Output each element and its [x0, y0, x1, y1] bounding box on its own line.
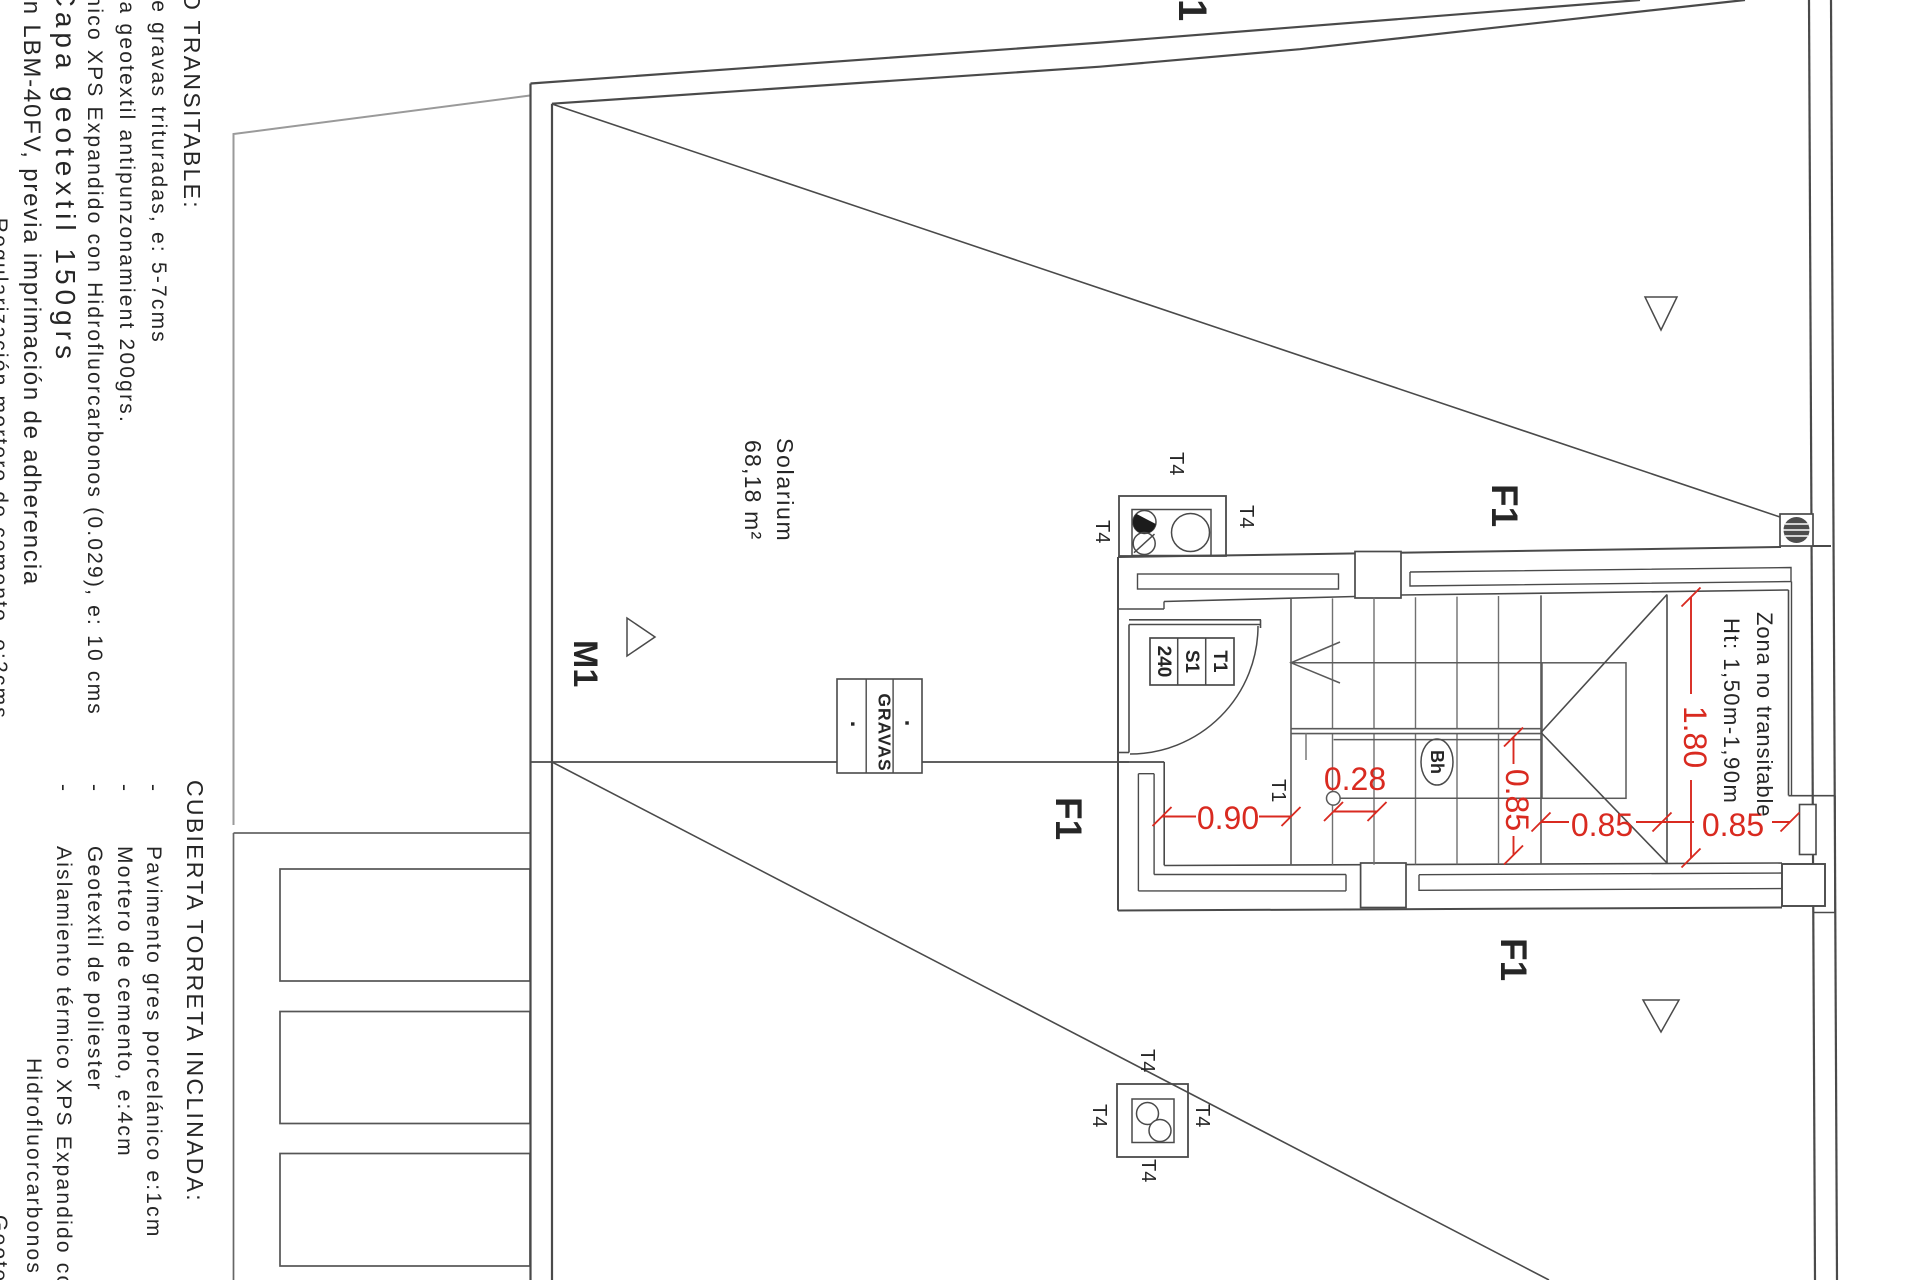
svg-text:0.28: 0.28 [1324, 761, 1386, 797]
svg-text:CUBIERTA PLANA NO TRANSITABLE:: CUBIERTA PLANA NO TRANSITABLE: [179, 0, 205, 210]
svg-text:Mortero de cemento, e:4cm: Mortero de cemento, e:4cm [113, 846, 136, 1158]
svg-text:Geotextil de poliester: Geotextil de poliester [83, 846, 106, 1092]
svg-text:-: - [142, 784, 165, 793]
svg-text:T4: T4 [1191, 1104, 1213, 1127]
svg-text:1: 1 [1170, 0, 1214, 21]
svg-text:T1: T1 [1209, 650, 1230, 673]
svg-text:T4: T4 [1137, 1159, 1159, 1182]
svg-text:68,18 m²: 68,18 m² [740, 440, 766, 540]
svg-text:0.85: 0.85 [1499, 769, 1535, 831]
svg-text:T1: T1 [1267, 779, 1289, 802]
svg-text:1.80: 1.80 [1677, 706, 1713, 768]
svg-text:GRAVAS: GRAVAS [875, 693, 895, 771]
svg-text:-: - [113, 784, 136, 793]
svg-text:F1: F1 [1048, 797, 1089, 840]
svg-text:0.90: 0.90 [1197, 800, 1259, 836]
svg-text:Aislamiento térmico XPS Expand: Aislamiento térmico XPS Expandido con [52, 846, 75, 1280]
svg-text:-: - [83, 784, 106, 793]
svg-text:Zona no transitable: Zona no transitable [1752, 612, 1777, 817]
svg-text:0.85: 0.85 [1571, 807, 1633, 843]
svg-text:Capa geotextil antipunzonamien: Capa geotextil antipunzonamient 200grs. [115, 0, 138, 424]
svg-text:CUBIERTA TORRETA INCLINADA:: CUBIERTA TORRETA INCLINADA: [182, 780, 208, 1203]
svg-text:Aislamiento térmico XPS Expand: Aislamiento térmico XPS Expandido con Hi… [83, 0, 106, 716]
svg-text:T4: T4 [1165, 452, 1187, 475]
svg-text:F1: F1 [1493, 938, 1534, 981]
svg-text:Ht: 1,50m-1,90m: Ht: 1,50m-1,90m [1719, 618, 1744, 804]
svg-text:S1: S1 [1181, 650, 1202, 674]
svg-text:Capa geotextil 150grs: Capa geotextil 150grs [50, 0, 81, 364]
svg-text:240: 240 [1153, 646, 1174, 678]
svg-text:T4: T4 [1136, 1049, 1158, 1072]
svg-text:Regularización mortero de ceme: Regularización mortero de cemento, e:2cm… [0, 218, 11, 720]
svg-text:M1: M1 [566, 640, 604, 687]
svg-text:Impermeabilización LBM-40FV, p: Impermeabilización LBM-40FV, previa impr… [18, 0, 45, 586]
svg-text:Solarium: Solarium [772, 438, 798, 542]
svg-text:Acabado de gravas trituradas,: Acabado de gravas trituradas, e: 5-7cms [147, 0, 170, 344]
svg-text:F1: F1 [1484, 484, 1525, 527]
svg-text:-: - [52, 784, 75, 793]
svg-text:Geotextil poliester: Geotextil poliester [0, 1215, 11, 1280]
svg-text:T4: T4 [1235, 505, 1257, 528]
svg-text:T4: T4 [1088, 1104, 1110, 1127]
svg-text:Bh: Bh [1427, 750, 1447, 774]
svg-text:Pavimento gres porcelánico e:1: Pavimento gres porcelánico e:1cm [142, 846, 165, 1239]
svg-text:Hidrofluorcarbonos (0.029), e:: Hidrofluorcarbonos (0.029), e: 10 cms [22, 1058, 45, 1280]
svg-text:T4: T4 [1091, 520, 1113, 543]
